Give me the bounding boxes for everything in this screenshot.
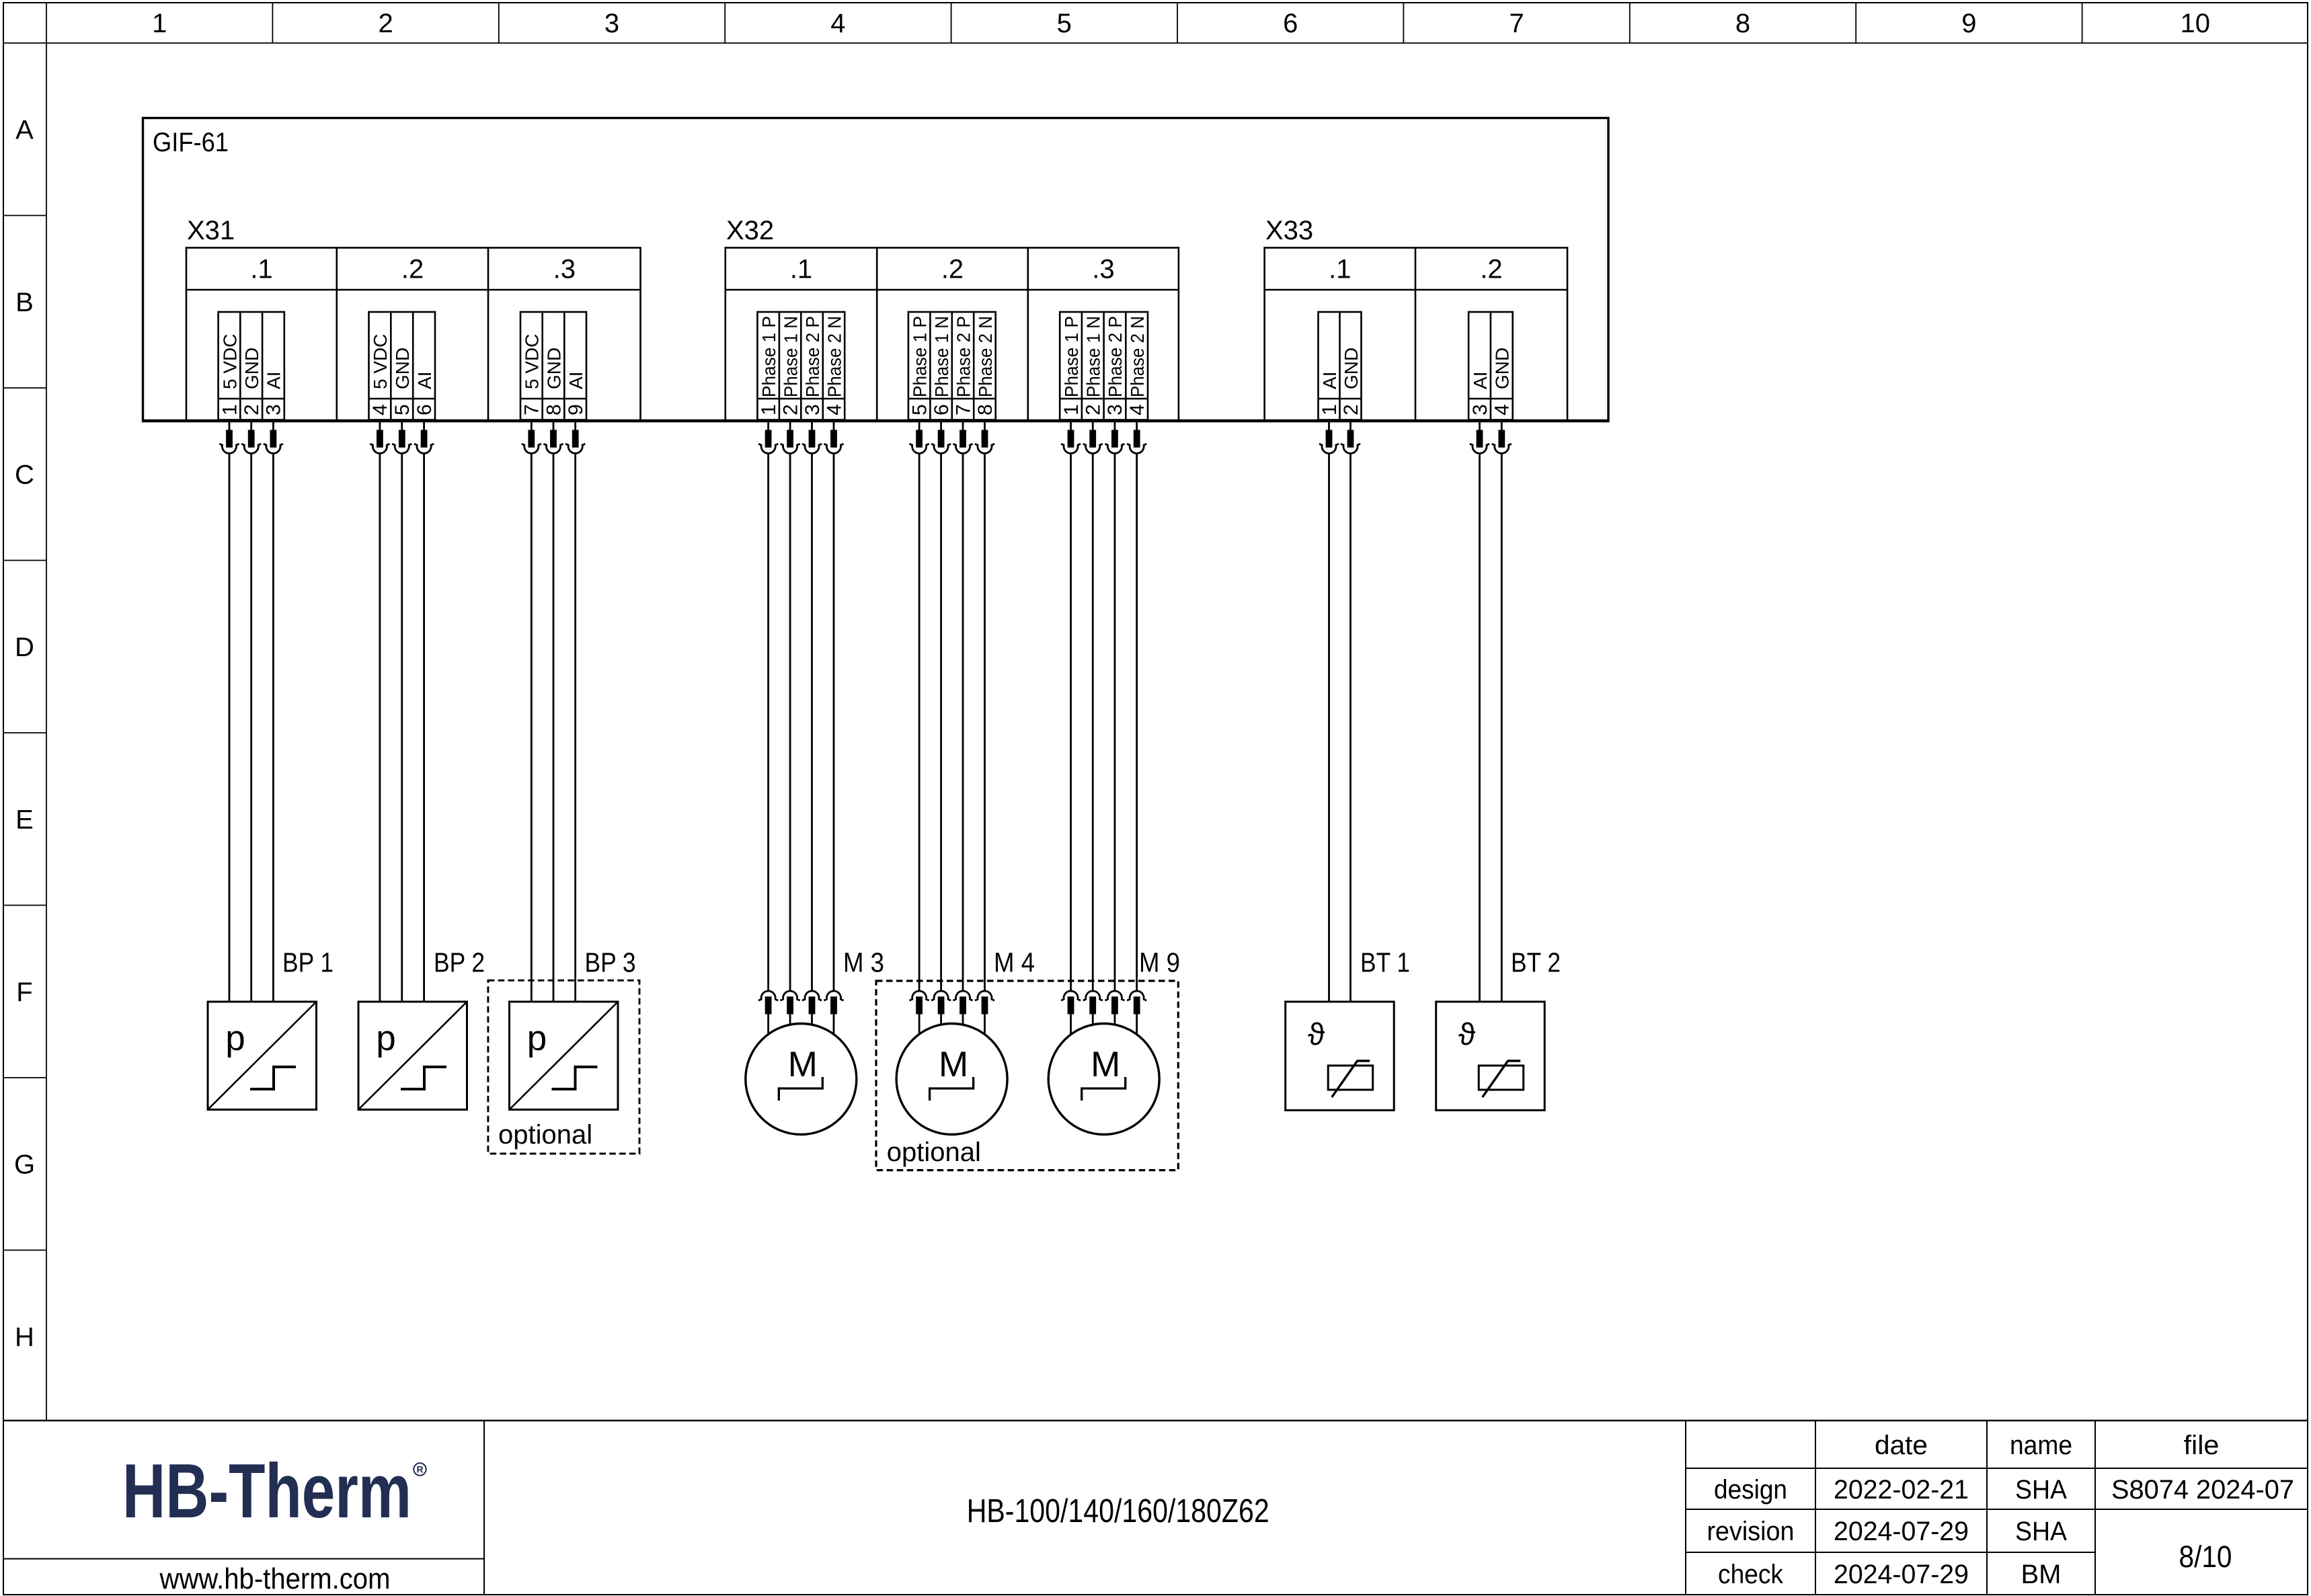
svg-text:2: 2 xyxy=(241,404,263,415)
svg-text:4: 4 xyxy=(823,404,845,415)
svg-text:p: p xyxy=(225,1019,245,1058)
svg-text:7: 7 xyxy=(952,404,974,415)
svg-text:4: 4 xyxy=(1491,404,1514,415)
svg-text:BP 3: BP 3 xyxy=(585,947,636,978)
svg-text:R: R xyxy=(416,1464,423,1475)
svg-text:Phase 2 P: Phase 2 P xyxy=(953,316,974,397)
svg-text:BM: BM xyxy=(2021,1560,2062,1589)
svg-text:Phase 2 P: Phase 2 P xyxy=(802,316,823,397)
svg-text:ϑ: ϑ xyxy=(1458,1016,1475,1051)
svg-text:GND: GND xyxy=(1341,348,1362,389)
svg-text:G: G xyxy=(14,1150,35,1180)
svg-text:2024-07-29: 2024-07-29 xyxy=(1834,1560,1969,1589)
svg-text:2: 2 xyxy=(378,9,393,38)
svg-text:S8074 2024-07: S8074 2024-07 xyxy=(2111,1475,2294,1505)
svg-text:8/10: 8/10 xyxy=(2179,1540,2232,1574)
svg-text:2: 2 xyxy=(779,404,801,415)
svg-text:1: 1 xyxy=(1319,404,1341,415)
svg-text:.1: .1 xyxy=(1329,255,1351,284)
svg-text:www.hb-therm.com: www.hb-therm.com xyxy=(159,1562,391,1595)
svg-text:M 3: M 3 xyxy=(843,947,884,978)
svg-text:M 4: M 4 xyxy=(994,947,1035,978)
svg-text:3: 3 xyxy=(604,9,619,38)
svg-text:8: 8 xyxy=(974,404,996,415)
svg-text:2: 2 xyxy=(1083,404,1105,415)
svg-text:GIF-61: GIF-61 xyxy=(153,128,229,157)
svg-text:Phase 2 N: Phase 2 N xyxy=(975,316,996,397)
svg-text:revision: revision xyxy=(1707,1517,1795,1546)
svg-text:Phase 1 P: Phase 1 P xyxy=(758,316,779,397)
svg-text:file: file xyxy=(2184,1431,2220,1460)
svg-text:4: 4 xyxy=(1126,404,1148,415)
svg-text:X31: X31 xyxy=(187,216,235,245)
svg-text:4: 4 xyxy=(830,9,845,38)
svg-text:ϑ: ϑ xyxy=(1308,1016,1325,1051)
svg-text:date: date xyxy=(1875,1431,1928,1460)
svg-text:8: 8 xyxy=(1735,9,1750,38)
svg-text:B: B xyxy=(15,288,34,317)
svg-text:SHA: SHA xyxy=(2015,1475,2067,1505)
svg-text:7: 7 xyxy=(1509,9,1524,38)
svg-text:GND: GND xyxy=(241,348,262,389)
svg-text:10: 10 xyxy=(2181,9,2211,38)
svg-text:H: H xyxy=(15,1322,34,1352)
svg-text:.1: .1 xyxy=(790,255,812,284)
svg-text:6: 6 xyxy=(931,404,953,415)
svg-text:5 VDC: 5 VDC xyxy=(370,334,391,389)
svg-text:GND: GND xyxy=(392,348,413,389)
svg-text:2022-02-21: 2022-02-21 xyxy=(1834,1475,1969,1505)
svg-text:A: A xyxy=(15,116,34,145)
svg-text:HB-Therm: HB-Therm xyxy=(122,1449,412,1534)
svg-text:.3: .3 xyxy=(1092,255,1114,284)
svg-text:AI: AI xyxy=(1470,372,1491,389)
svg-text:3: 3 xyxy=(1469,404,1491,415)
svg-text:9: 9 xyxy=(565,404,587,415)
svg-text:E: E xyxy=(15,805,34,835)
svg-text:optional: optional xyxy=(498,1120,592,1150)
svg-text:1: 1 xyxy=(1060,404,1083,415)
svg-text:name: name xyxy=(2010,1431,2072,1460)
svg-text:BP 1: BP 1 xyxy=(282,947,334,978)
svg-text:D: D xyxy=(15,633,34,662)
svg-text:.3: .3 xyxy=(553,255,576,284)
svg-text:3: 3 xyxy=(801,404,824,415)
svg-text:5: 5 xyxy=(908,404,931,415)
svg-text:Phase 2 P: Phase 2 P xyxy=(1105,316,1126,397)
svg-text:p: p xyxy=(527,1019,547,1058)
svg-text:F: F xyxy=(16,977,32,1007)
svg-text:Phase 2 N: Phase 2 N xyxy=(1127,316,1148,397)
svg-text:6: 6 xyxy=(414,404,436,415)
svg-text:SHA: SHA xyxy=(2015,1517,2067,1546)
svg-text:8: 8 xyxy=(543,404,565,415)
svg-text:BP 2: BP 2 xyxy=(434,947,485,978)
svg-text:1: 1 xyxy=(758,404,780,415)
svg-text:4: 4 xyxy=(369,404,391,415)
svg-text:AI: AI xyxy=(565,372,586,389)
svg-text:M 9: M 9 xyxy=(1139,947,1180,978)
svg-text:1: 1 xyxy=(152,9,167,38)
svg-text:X32: X32 xyxy=(726,216,774,245)
svg-text:check: check xyxy=(1718,1560,1784,1589)
svg-text:5: 5 xyxy=(391,404,414,415)
svg-text:HB-100/140/160/180Z62: HB-100/140/160/180Z62 xyxy=(967,1493,1269,1529)
svg-text:.1: .1 xyxy=(250,255,272,284)
svg-text:AI: AI xyxy=(264,372,284,389)
svg-text:M: M xyxy=(788,1045,818,1084)
svg-text:BT 1: BT 1 xyxy=(1360,947,1410,978)
svg-text:3: 3 xyxy=(1104,404,1126,415)
svg-text:3: 3 xyxy=(263,404,285,415)
svg-text:GND: GND xyxy=(1492,348,1513,389)
svg-text:5 VDC: 5 VDC xyxy=(522,334,543,389)
svg-text:design: design xyxy=(1714,1475,1787,1505)
svg-text:.2: .2 xyxy=(401,255,424,284)
svg-text:M: M xyxy=(939,1045,968,1084)
svg-text:.2: .2 xyxy=(941,255,964,284)
svg-text:AI: AI xyxy=(414,372,435,389)
svg-text:BT 2: BT 2 xyxy=(1511,947,1561,978)
svg-text:Phase 2 N: Phase 2 N xyxy=(824,316,845,397)
svg-text:2024-07-29: 2024-07-29 xyxy=(1834,1517,1969,1546)
svg-text:optional: optional xyxy=(887,1138,981,1167)
svg-text:Phase 1 N: Phase 1 N xyxy=(931,316,952,397)
svg-text:M: M xyxy=(1091,1045,1120,1084)
svg-text:Phase 1 P: Phase 1 P xyxy=(909,316,930,397)
svg-text:C: C xyxy=(15,461,34,490)
svg-text:Phase 1 N: Phase 1 N xyxy=(780,316,801,397)
svg-text:7: 7 xyxy=(521,404,543,415)
svg-text:9: 9 xyxy=(1961,9,1976,38)
svg-text:5: 5 xyxy=(1057,9,1072,38)
svg-text:GND: GND xyxy=(543,348,564,389)
svg-text:2: 2 xyxy=(1340,404,1362,415)
svg-text:5 VDC: 5 VDC xyxy=(219,334,240,389)
svg-text:p: p xyxy=(376,1019,395,1058)
svg-text:1: 1 xyxy=(219,404,241,415)
svg-text:Phase 1 N: Phase 1 N xyxy=(1083,316,1104,397)
svg-text:.2: .2 xyxy=(1480,255,1502,284)
svg-text:X33: X33 xyxy=(1265,216,1313,245)
svg-text:AI: AI xyxy=(1319,372,1340,389)
svg-text:Phase 1 P: Phase 1 P xyxy=(1061,316,1082,397)
svg-text:6: 6 xyxy=(1283,9,1298,38)
